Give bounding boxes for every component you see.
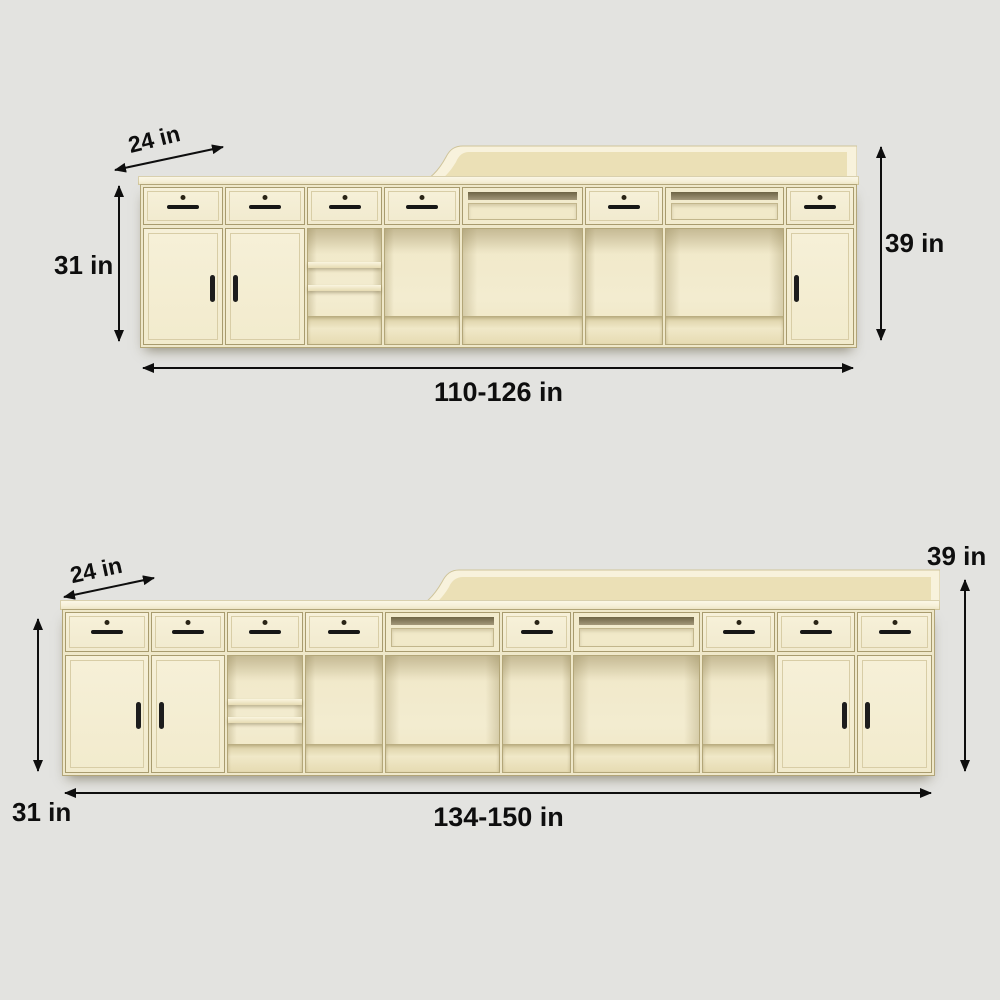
dimension-label-top-total-height: 39 in — [885, 228, 944, 259]
dimensions-diagram: 24 in 31 in 39 in 110-126 in 24 in 31 in… — [0, 0, 1000, 1000]
shelf-board — [308, 262, 381, 268]
dimension-label-bottom-total-height: 39 in — [927, 541, 986, 572]
shelf-board — [308, 285, 381, 291]
dimension-label-bottom-width: 134-150 in — [62, 802, 935, 833]
dimension-label-top-width: 110-126 in — [140, 377, 857, 408]
shelf-board — [228, 717, 302, 723]
dimension-label-top-counter-height: 31 in — [54, 250, 113, 281]
shelf-board — [228, 699, 302, 705]
